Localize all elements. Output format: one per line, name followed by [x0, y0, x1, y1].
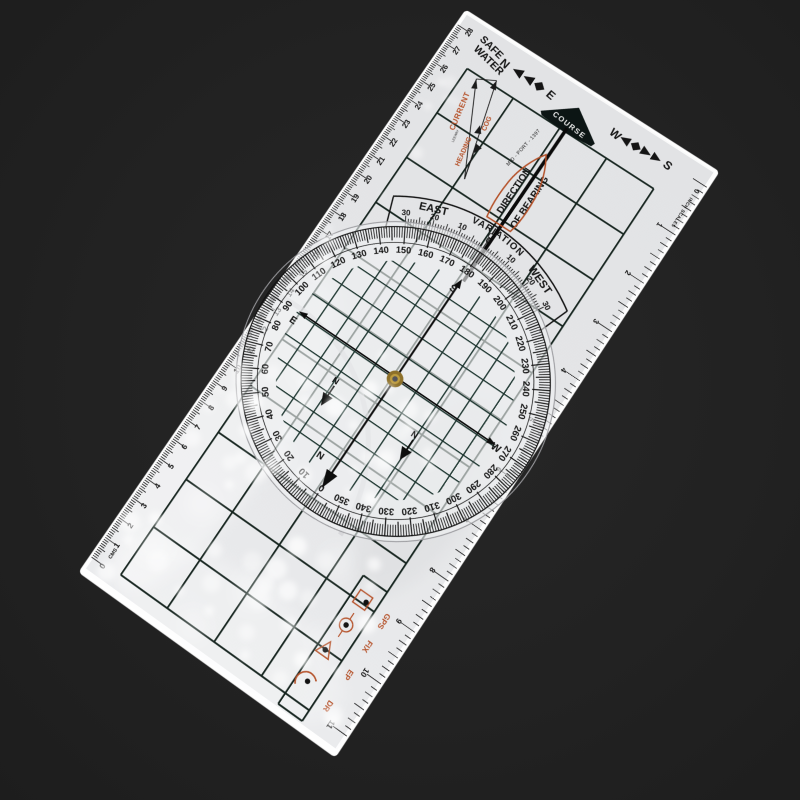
svg-text:230: 230	[519, 358, 532, 375]
svg-text:50: 50	[259, 386, 271, 398]
svg-text:240: 240	[520, 381, 532, 398]
svg-text:30: 30	[401, 208, 410, 218]
svg-text:140: 140	[373, 244, 390, 256]
svg-text:150: 150	[396, 244, 412, 255]
svg-text:330: 330	[378, 505, 395, 517]
svg-text:320: 320	[401, 505, 418, 517]
